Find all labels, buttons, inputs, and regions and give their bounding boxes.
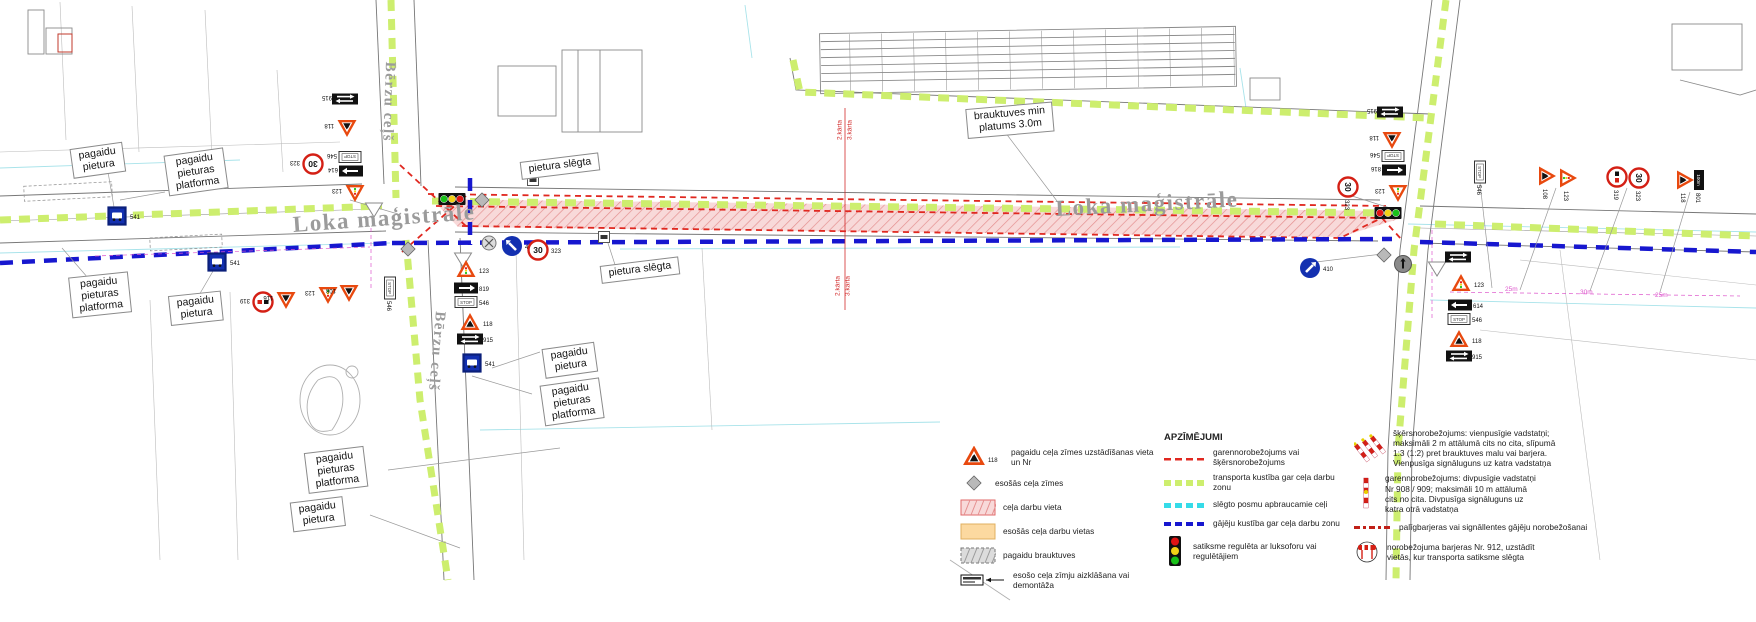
- tri-light-sign: 123: [1374, 185, 1407, 202]
- tri-worker-sign: 118: [324, 120, 357, 137]
- sign-number: 614: [327, 166, 338, 172]
- sign-number: 118: [324, 122, 334, 128]
- stage-label: 2.kārta: [837, 120, 844, 140]
- sign-bus-sign: 541: [209, 254, 241, 271]
- svg-text:STOP: STOP: [1387, 153, 1399, 158]
- note-label: pagaidu pieturas platforma: [68, 271, 132, 318]
- lg-area-orange-icon: [960, 522, 996, 541]
- lg-covered-icon: [960, 571, 1006, 589]
- sign-number: 915: [321, 94, 332, 100]
- legend-item-text: šķērsnorobežojums: vienpusīgie vadstatņi…: [1393, 428, 1555, 468]
- note-label: pagaidu pieturas platforma: [540, 377, 605, 426]
- sign-number: 108: [325, 287, 336, 293]
- sign-number: 541: [130, 215, 141, 221]
- legend-item: norobežojuma barjeras Nr. 912, uzstādīt …: [1354, 540, 1754, 564]
- road-name-label: Bērzu ceļš: [378, 61, 398, 142]
- legend-item: esošās ceļa zīmes: [960, 473, 1160, 493]
- lg-barrier-912-icon: [1354, 540, 1380, 564]
- plate-double-arrow-sign: [1445, 252, 1471, 263]
- legend-item: transporta kustība gar ceļa darbu zonu: [1164, 472, 1349, 492]
- svg-text:100m: 100m: [1696, 174, 1701, 186]
- plate-stop-sign: STOP546: [455, 297, 490, 308]
- lg-barrier-dash-icon: [1354, 519, 1392, 535]
- sign-number: 546: [385, 301, 391, 312]
- tri-light-sign: 123: [1560, 169, 1577, 202]
- tri-light-sign: 123: [1452, 274, 1485, 291]
- circle-30-sign: 30323: [289, 155, 322, 174]
- sign-number: 541: [230, 261, 241, 267]
- sign-number: 614: [1473, 304, 1484, 310]
- diamond-sign: [1377, 248, 1391, 262]
- plate-arrow-sign: 816: [1370, 165, 1406, 176]
- sign-number: 123: [1374, 187, 1385, 193]
- sign-number: 118: [1679, 193, 1685, 203]
- tri-worker-sign: 118: [1369, 132, 1402, 149]
- stage-label: 3.kārta: [845, 276, 852, 296]
- sign-number: 915: [1472, 355, 1483, 361]
- plate-stop-sign: STOP546: [1475, 161, 1486, 196]
- sign-number: 546: [1369, 151, 1380, 157]
- sign-number: 541: [485, 362, 496, 368]
- lg-diamond-icon: [960, 473, 988, 493]
- svg-text:30: 30: [1634, 173, 1644, 183]
- legend-item: garennorobežojums: divpusīgie vadstatņi …: [1354, 473, 1754, 513]
- traffic-management-plan: 915118STOP5466141233032341130323123819ST…: [0, 0, 1756, 622]
- traffic-light-sign: [1375, 207, 1402, 219]
- lg-area-red-icon: [960, 498, 996, 517]
- plate-double-arrow-sign: 915: [1366, 107, 1403, 118]
- sign-number: 123: [479, 269, 490, 275]
- tri-yield-white-sign: [455, 253, 472, 267]
- svg-text:STOP: STOP: [1477, 166, 1482, 178]
- sign-number: 118: [1369, 134, 1379, 140]
- stage-label: 3.kārta: [847, 120, 854, 140]
- warehouse-building: [820, 26, 1237, 93]
- legend-item-text: garennorobežojums vai šķērsnorobežojums: [1213, 447, 1349, 467]
- legend-item-text: ceļa darbu vieta: [1003, 502, 1062, 512]
- sign-number: 323: [1343, 200, 1349, 211]
- stage-label: 2.kārta: [835, 276, 842, 296]
- legend-item-text: pagaidu ceļa zīmes uzstādīšanas vieta un…: [1011, 447, 1160, 467]
- legend: 118pagaidu ceļa zīmes uzstādīšanas vieta…: [952, 424, 1752, 619]
- sign-bus-sign: 541: [464, 355, 496, 372]
- tri-worker-sign: 118: [1677, 171, 1694, 204]
- dimension-label: 25m: [1505, 286, 1518, 293]
- legend-item-text: satiksme regulēta ar luksoforu vai regul…: [1193, 541, 1317, 561]
- tri-yield-white-sign: [1429, 262, 1446, 276]
- sign-number: 323: [289, 159, 300, 165]
- lg-dash-blue-icon: [1164, 516, 1206, 530]
- circle-crossed-sign: [482, 236, 496, 250]
- sign-number: 118: [1472, 339, 1482, 345]
- legend-item: pagaidu brauktuves: [960, 546, 1160, 565]
- legend-item: slēgto posmu apbraucamie ceļi: [1164, 497, 1349, 511]
- legend-column-1: 118pagaidu ceļa zīmes uzstādīšanas vieta…: [960, 446, 1160, 595]
- legend-item-text: esošās ceļa darbu vietas: [1003, 526, 1094, 536]
- sign-number: 123: [1562, 191, 1568, 202]
- red-building-mark: [58, 34, 72, 52]
- lg-area-gray-icon: [960, 546, 996, 565]
- lg-posts-angled-icon: [1354, 431, 1386, 465]
- legend-item: gājēju kustība gar ceļa darbu zonu: [1164, 516, 1349, 530]
- legend-item-text: norobežojuma barjeras Nr. 912, uzstādīt …: [1387, 542, 1535, 562]
- svg-text:STOP: STOP: [344, 154, 356, 159]
- svg-text:30: 30: [1343, 182, 1353, 192]
- sign-number: 319: [1612, 190, 1618, 201]
- lg-post-vert-icon: [1354, 475, 1378, 513]
- circle-30-sign: 30323: [1630, 169, 1649, 202]
- plate-stop-sign: STOP546: [385, 277, 396, 312]
- dimension-label: 30m: [1580, 289, 1593, 296]
- legend-item-text: gājēju kustība gar ceļa darbu zonu: [1213, 518, 1340, 528]
- sign-number: 819: [479, 287, 490, 293]
- legend-column-3: šķērsnorobežojums: vienpusīgie vadstatņi…: [1354, 428, 1754, 569]
- legend-item: satiksme regulēta ar luksoforu vai regul…: [1164, 535, 1349, 567]
- svg-text:STOP: STOP: [460, 300, 472, 305]
- plate-stop-sign: STOP546: [326, 152, 361, 163]
- plate-double-arrow-sign: 915: [1446, 351, 1483, 362]
- lg-dash-red-icon: [1164, 451, 1206, 463]
- legend-item-text: transporta kustība gar ceļa darbu zonu: [1213, 472, 1349, 492]
- circle-ban-sign: 319: [1608, 168, 1627, 201]
- sign-number: 816: [1370, 165, 1381, 171]
- lg-tri-icon: 118: [960, 446, 1004, 468]
- legend-column-2: APZĪMĒJUMI garennorobežojums vai šķērsno…: [1164, 432, 1349, 572]
- sign-number: 546: [1472, 318, 1483, 324]
- legend-item-text: esošo ceļa zīmju aizklāšana vai demontāž…: [1013, 570, 1160, 590]
- sign-number: 546: [326, 152, 337, 158]
- plate-arrow-sign: 819: [454, 283, 490, 294]
- legend-item: ceļa darbu vieta: [960, 498, 1160, 517]
- sign-number: 915: [483, 338, 494, 344]
- circle-gray-arrow-sign: [1395, 256, 1412, 273]
- sign-number: 410: [1323, 267, 1334, 273]
- sign-number: 116: [263, 294, 273, 300]
- sign-number: 801: [1694, 193, 1700, 204]
- dimension-label: 25m: [1655, 292, 1668, 299]
- tri-worker-sign: 118: [461, 313, 494, 330]
- note-label: pagaidu pieturas platforma: [304, 446, 368, 494]
- blue-arrow-sign: 410: [1300, 258, 1334, 278]
- sign-number: 323: [551, 249, 562, 255]
- sign-number: 546: [1475, 185, 1481, 196]
- legend-item-text: palīgbarjeras vai signāllentes gājēju no…: [1399, 522, 1587, 532]
- plate-arrow-sign: 614: [327, 166, 363, 177]
- note-label: pagaidu pietura: [168, 291, 224, 326]
- lg-tl-icon: [1164, 535, 1186, 567]
- plate-100m-sign: 100m801: [1694, 170, 1704, 204]
- legend-item-text: pagaidu brauktuves: [1003, 550, 1075, 560]
- note-label: pagaidu pieturas platforma: [164, 147, 229, 196]
- lg-dash-green-icon: [1164, 475, 1206, 489]
- tri-worker-sign: 118: [1450, 330, 1483, 347]
- svg-text:118: 118: [988, 458, 998, 464]
- lg-dash-cyan-icon: [1164, 497, 1206, 511]
- sign-bus-sign: 541: [109, 208, 141, 225]
- plate-stop-sign: STOP546: [1448, 314, 1483, 325]
- sign-number: 123: [304, 289, 315, 295]
- plate-double-arrow-sign: 915: [457, 334, 494, 345]
- svg-text:STOP: STOP: [387, 282, 392, 294]
- legend-item-text: garennorobežojums: divpusīgie vadstatņi …: [1385, 473, 1536, 513]
- legend-item-text: esošās ceļa zīmes: [995, 478, 1063, 488]
- plate-stop-sign: STOP546: [1369, 151, 1404, 162]
- sign-number: 118: [483, 322, 493, 328]
- legend-item: esošās ceļa darbu vietas: [960, 522, 1160, 541]
- sign-number: 123: [1474, 283, 1485, 289]
- dimension-lines: [95, 228, 1740, 320]
- legend-item: palīgbarjeras vai signāllentes gājēju no…: [1354, 519, 1754, 535]
- sign-number: 319: [239, 297, 250, 303]
- sign-number: 123: [331, 187, 342, 193]
- legend-title: APZĪMĒJUMI: [1164, 432, 1349, 443]
- svg-text:30: 30: [308, 159, 318, 169]
- bus-marker-sign: [599, 232, 610, 243]
- sign-number: 108: [1541, 189, 1547, 200]
- legend-item: šķērsnorobežojums: vienpusīgie vadstatņi…: [1354, 428, 1754, 468]
- sign-number: 546: [479, 301, 490, 307]
- legend-item: garennorobežojums vai šķērsnorobežojums: [1164, 447, 1349, 467]
- svg-text:STOP: STOP: [1453, 317, 1465, 322]
- plate-double-arrow-sign: 915: [321, 94, 358, 105]
- sign-number: 323: [1634, 191, 1640, 202]
- legend-item-text: slēgto posmu apbraucamie ceļi: [1213, 499, 1327, 509]
- svg-text:30: 30: [533, 245, 543, 255]
- tri-light-sign: 123: [331, 185, 364, 202]
- sign-number: 915: [1366, 107, 1377, 113]
- legend-item: esošo ceļa zīmju aizklāšana vai demontāž…: [960, 570, 1160, 590]
- legend-item: 118pagaidu ceļa zīmes uzstādīšanas vieta…: [960, 446, 1160, 468]
